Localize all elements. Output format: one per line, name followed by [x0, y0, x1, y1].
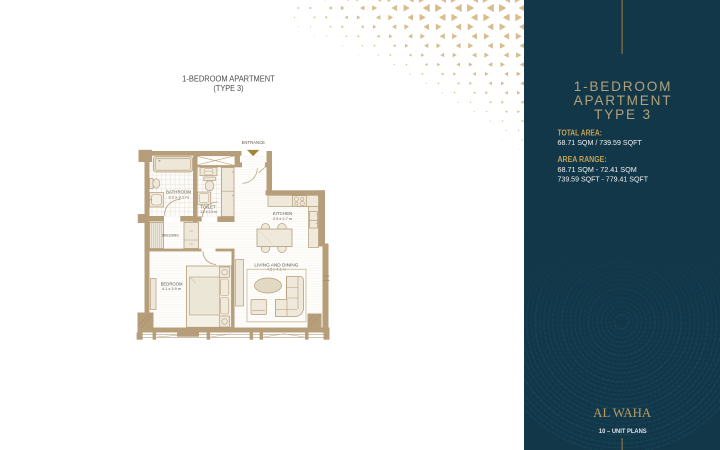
svg-text:10 – UNIT PLANS: 10 – UNIT PLANS — [599, 429, 647, 435]
svg-text:1-BEDROOM: 1-BEDROOM — [574, 79, 673, 94]
svg-text:68.71 SQM / 739.59 SQFT: 68.71 SQM / 739.59 SQFT — [558, 138, 643, 147]
svg-text:DRESSING: DRESSING — [162, 233, 179, 237]
svg-text:ENTRANCE: ENTRANCE — [242, 140, 265, 145]
svg-text:TYPE 3: TYPE 3 — [594, 107, 652, 122]
svg-text:739.59 SQFT - 779.41 SQFT: 739.59 SQFT - 779.41 SQFT — [558, 174, 649, 183]
svg-text:AREA RANGE:: AREA RANGE: — [558, 155, 607, 164]
svg-text:TOTAL AREA:: TOTAL AREA: — [558, 128, 603, 137]
svg-text:BATHROOM: BATHROOM — [166, 190, 191, 195]
svg-text:2.5 x 2.7 m: 2.5 x 2.7 m — [273, 217, 292, 221]
svg-text:KITCHEN: KITCHEN — [273, 211, 293, 216]
svg-text:APARTMENT: APARTMENT — [574, 93, 673, 108]
svg-text:1.2 x 2.5 m: 1.2 x 2.5 m — [200, 210, 217, 214]
svg-text:2.2 x 3.1 m: 2.2 x 3.1 m — [168, 195, 189, 199]
svg-text:AL WAHA: AL WAHA — [593, 406, 651, 420]
svg-text:TOILET: TOILET — [200, 205, 216, 210]
svg-text:1-BEDROOM APARTMENT: 1-BEDROOM APARTMENT — [182, 75, 275, 84]
svg-text:BEDROOM: BEDROOM — [161, 281, 183, 286]
svg-text:4.1 x 3.9 m: 4.1 x 3.9 m — [162, 287, 181, 291]
svg-text:(TYPE 3): (TYPE 3) — [213, 84, 243, 93]
svg-text:68.71 SQM - 72.41 SQM: 68.71 SQM - 72.41 SQM — [558, 165, 637, 174]
